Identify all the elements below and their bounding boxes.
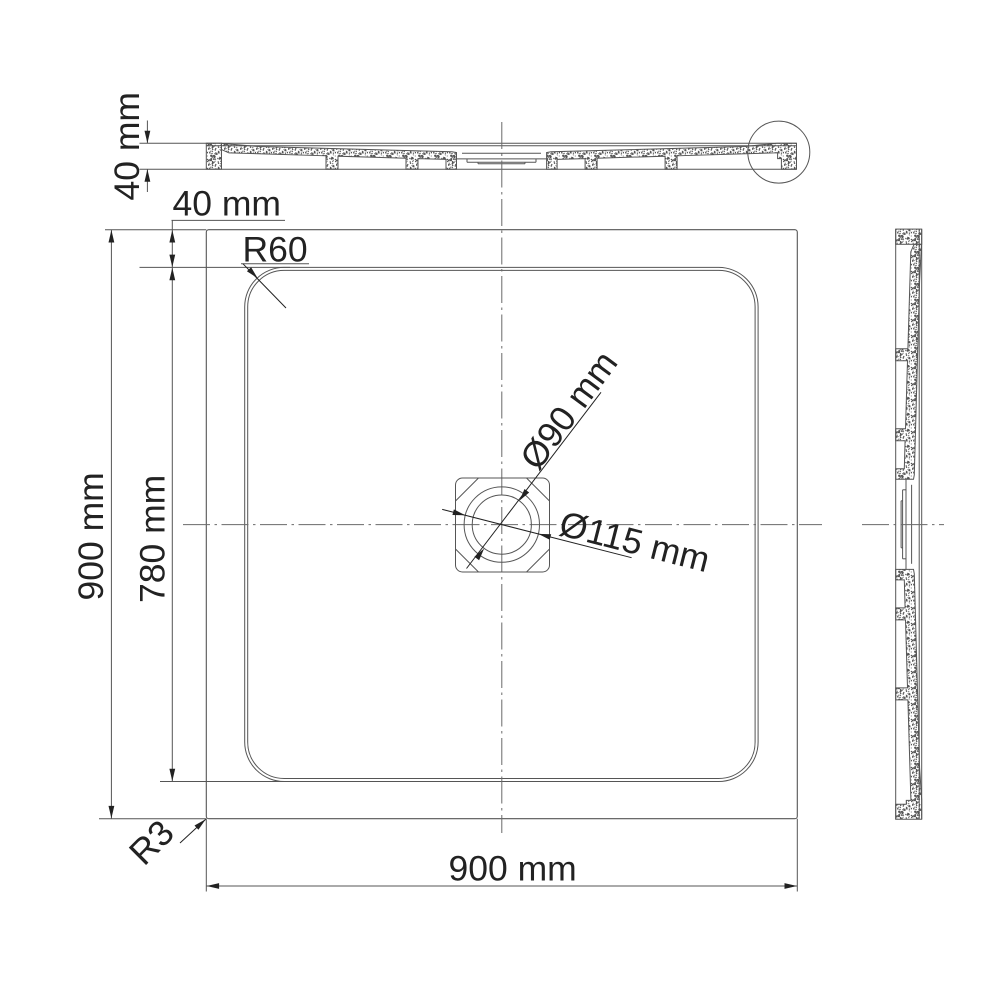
svg-text:900 mm: 900 mm (71, 472, 111, 600)
svg-text:900 mm: 900 mm (449, 849, 577, 889)
svg-text:780 mm: 780 mm (133, 475, 173, 603)
svg-text:40 mm: 40 mm (173, 184, 282, 224)
svg-text:40 mm: 40 mm (107, 92, 147, 201)
